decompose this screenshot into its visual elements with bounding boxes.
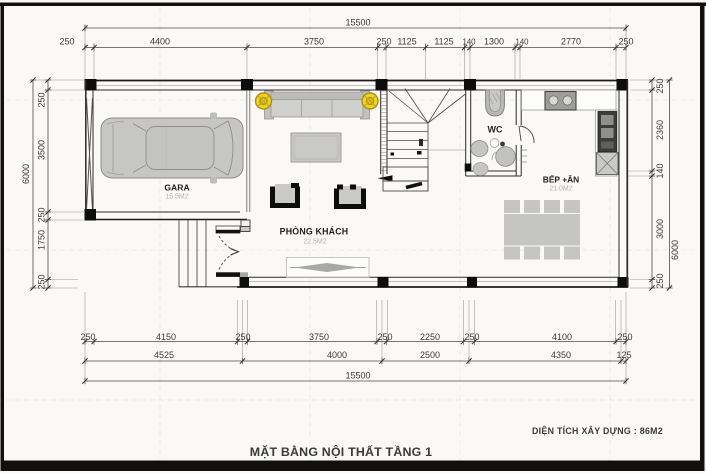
svg-text:250: 250	[464, 332, 479, 342]
svg-text:250: 250	[655, 78, 665, 93]
svg-text:MẶT BẰNG NỘI THẤT TẦNG 1: MẶT BẰNG NỘI THẤT TẦNG 1	[250, 444, 432, 459]
svg-text:250: 250	[37, 207, 47, 222]
svg-text:140: 140	[462, 38, 476, 47]
svg-text:250: 250	[235, 332, 250, 342]
svg-text:1300: 1300	[484, 37, 504, 47]
svg-text:1125: 1125	[397, 37, 416, 47]
svg-text:BẾP +ĂN: BẾP +ĂN	[543, 175, 579, 185]
svg-text:2250: 2250	[420, 332, 440, 342]
svg-text:250: 250	[617, 332, 632, 342]
svg-text:1125: 1125	[434, 37, 453, 47]
svg-text:3750: 3750	[304, 37, 324, 47]
svg-text:250: 250	[376, 37, 391, 47]
svg-text:4350: 4350	[551, 350, 571, 360]
svg-text:1750: 1750	[37, 230, 47, 250]
svg-text:125: 125	[616, 350, 631, 360]
svg-text:250: 250	[59, 37, 74, 47]
svg-text:140: 140	[515, 38, 529, 47]
svg-text:15500: 15500	[345, 371, 370, 381]
svg-text:250: 250	[618, 37, 633, 47]
svg-text:6000: 6000	[21, 164, 31, 184]
svg-text:3750: 3750	[309, 332, 329, 342]
svg-text:250: 250	[655, 273, 665, 288]
svg-text:4150: 4150	[156, 332, 176, 342]
svg-text:250: 250	[37, 274, 47, 289]
svg-text:3000: 3000	[655, 219, 665, 239]
svg-text:250: 250	[80, 332, 95, 342]
svg-text:2360: 2360	[655, 120, 665, 140]
svg-text:2770: 2770	[561, 37, 581, 47]
svg-text:DIỆN TÍCH XÂY DỰNG : 86M2: DIỆN TÍCH XÂY DỰNG : 86M2	[532, 425, 663, 436]
svg-text:22.5M2: 22.5M2	[303, 239, 326, 246]
svg-text:250: 250	[37, 92, 47, 107]
svg-text:GARA: GARA	[164, 183, 189, 193]
svg-text:21.0M2: 21.0M2	[549, 186, 572, 193]
svg-text:15500: 15500	[345, 18, 370, 28]
svg-text:250: 250	[377, 332, 392, 342]
svg-text:4525: 4525	[154, 350, 174, 360]
svg-text:3500: 3500	[37, 140, 47, 160]
svg-text:15.5M2: 15.5M2	[165, 194, 188, 201]
svg-text:2500: 2500	[420, 350, 440, 360]
svg-text:WC: WC	[488, 125, 503, 135]
svg-text:4400: 4400	[150, 37, 170, 47]
svg-text:PHÒNG KHÁCH: PHÒNG KHÁCH	[280, 226, 349, 237]
svg-text:140: 140	[655, 163, 665, 178]
svg-text:6000: 6000	[670, 240, 680, 260]
svg-text:4000: 4000	[327, 350, 347, 360]
svg-text:4100: 4100	[552, 332, 572, 342]
